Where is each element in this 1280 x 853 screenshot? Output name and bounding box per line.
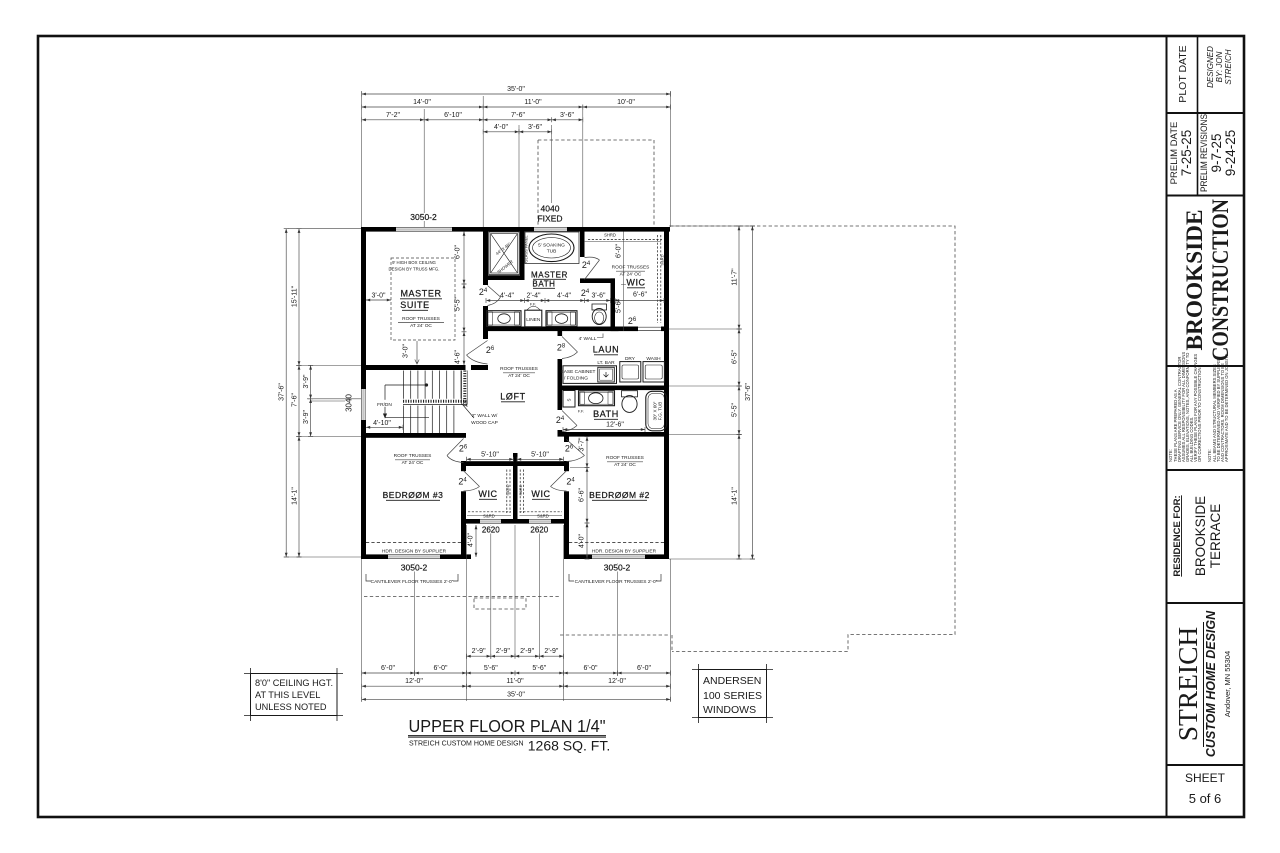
svg-text:TUB: TUB xyxy=(547,249,557,255)
svg-text:WOOD CAP: WOOD CAP xyxy=(471,420,498,426)
svg-text:AT 24' OC: AT 24' OC xyxy=(614,462,636,468)
svg-text:6'-0": 6'-0" xyxy=(615,244,622,258)
svg-text:GLASS PANEL: GLASS PANEL xyxy=(524,235,529,263)
svg-text:STREICH: STREICH xyxy=(1224,49,1233,84)
svg-text:UPPER FLOOR PLAN 1/4": UPPER FLOOR PLAN 1/4" xyxy=(409,716,606,736)
svg-text:LØFT: LØFT xyxy=(500,392,525,402)
svg-text:5'-10": 5'-10" xyxy=(531,451,549,458)
svg-text:12'-6": 12'-6" xyxy=(606,422,624,429)
svg-text:BROOKSIDE: BROOKSIDE xyxy=(1182,210,1208,351)
svg-text:2'-9": 2'-9" xyxy=(472,648,486,655)
svg-text:3'-0": 3'-0" xyxy=(403,344,410,358)
svg-text:11'-0": 11'-0" xyxy=(524,99,542,106)
svg-text:DESIGN BY TRUSS MFG.: DESIGN BY TRUSS MFG. xyxy=(389,267,440,272)
svg-text:5'-6": 5'-6" xyxy=(615,299,622,313)
svg-text:FR/DN: FR/DN xyxy=(377,402,392,408)
svg-text:UNLESS NOTED: UNLESS NOTED xyxy=(255,702,327,712)
svg-text:SHEET: SHEET xyxy=(1185,771,1226,785)
svg-text:BROOKSIDE: BROOKSIDE xyxy=(1193,496,1208,576)
svg-text:DRY: DRY xyxy=(625,356,636,362)
svg-text:4'-0": 4'-0" xyxy=(494,124,508,131)
svg-text:6'-0": 6'-0" xyxy=(455,245,462,259)
svg-text:AT 24' OC: AT 24' OC xyxy=(410,323,432,329)
svg-text:WASH: WASH xyxy=(646,356,661,362)
svg-text:CANTILEVER FLOOR TRUSSES 2'-0": CANTILEVER FLOOR TRUSSES 2'-0" xyxy=(371,579,454,585)
svg-text:RESIDENCE FOR:: RESIDENCE FOR: xyxy=(1172,495,1183,576)
svg-text:LT. BAR: LT. BAR xyxy=(597,360,615,366)
svg-text:F.G. TUB: F.G. TUB xyxy=(658,402,663,420)
svg-text:F.F.: F.F. xyxy=(578,409,584,414)
svg-text:WINDOWS: WINDOWS xyxy=(703,704,756,716)
svg-text:LAUN: LAUN xyxy=(593,345,619,355)
svg-text:9-24-25: 9-24-25 xyxy=(1223,130,1238,177)
svg-text:14'-1": 14'-1" xyxy=(291,487,298,505)
svg-text:Andover, MN 55304: Andover, MN 55304 xyxy=(1223,651,1232,717)
svg-text:STREICH: STREICH xyxy=(1172,627,1203,742)
svg-text:ROOF TRUSSES: ROOF TRUSSES xyxy=(612,265,650,271)
svg-text:12'-0": 12'-0" xyxy=(405,678,423,685)
svg-text:CUSTOM HOME DESIGN: CUSTOM HOME DESIGN xyxy=(1204,610,1218,757)
svg-text:2'-9": 2'-9" xyxy=(544,648,558,655)
svg-text:LINEN: LINEN xyxy=(526,317,541,323)
svg-text:5'-6": 5'-6" xyxy=(484,665,498,672)
svg-text:14'-0": 14'-0" xyxy=(413,99,431,106)
svg-text:7-25-25: 7-25-25 xyxy=(1179,130,1194,177)
svg-text:6'-6": 6'-6" xyxy=(579,488,586,502)
svg-text:4040: 4040 xyxy=(541,204,560,214)
svg-text:DESIGNED: DESIGNED xyxy=(1206,46,1215,88)
svg-text:ROOF TRUSSES: ROOF TRUSSES xyxy=(402,316,440,322)
svg-text:S: S xyxy=(567,398,572,401)
svg-text:2'-4": 2'-4" xyxy=(527,293,541,300)
svg-text:ANDERSEN: ANDERSEN xyxy=(703,675,761,687)
svg-text:4'-6": 4'-6" xyxy=(455,350,462,364)
svg-text:6'-0": 6'-0" xyxy=(381,665,395,672)
svg-text:11'-0": 11'-0" xyxy=(506,678,524,685)
svg-text:5'-6": 5'-6" xyxy=(532,665,546,672)
svg-text:F.F.: F.F. xyxy=(530,302,536,307)
svg-text:PLOT DATE: PLOT DATE xyxy=(1177,45,1189,102)
svg-text:OR CORRECTIONS PRIOR TO CONSTR: OR CORRECTIONS PRIOR TO CONSTRUCTION. xyxy=(1197,366,1202,462)
svg-text:4'-10": 4'-10" xyxy=(373,420,391,427)
svg-text:3'-6": 3'-6" xyxy=(560,112,574,119)
svg-text:S&RD: S&RD xyxy=(483,514,495,519)
svg-text:S&RD: S&RD xyxy=(505,484,510,495)
svg-text:WIC: WIC xyxy=(626,278,645,288)
svg-text:BEDRØØM #2: BEDRØØM #2 xyxy=(589,490,650,500)
svg-text:FIXED: FIXED xyxy=(537,214,562,224)
svg-text:CANTILEVER FLOOR TRUSSES 2'-0": CANTILEVER FLOOR TRUSSES 2'-0" xyxy=(575,579,658,585)
svg-text:2'-9": 2'-9" xyxy=(520,648,534,655)
svg-text:SUITE: SUITE xyxy=(400,300,430,310)
svg-text:5 of 6: 5 of 6 xyxy=(1189,791,1222,806)
svg-text:BATH: BATH xyxy=(532,280,555,289)
svg-text:4'-4": 4'-4" xyxy=(500,293,514,300)
svg-text:3'-6": 3'-6" xyxy=(528,124,542,131)
svg-text:3'-6": 3'-6" xyxy=(592,293,606,300)
svg-text:35'-0": 35'-0" xyxy=(507,691,525,698)
svg-text:AT THIS LEVEL: AT THIS LEVEL xyxy=(255,690,320,700)
svg-text:/ FOLDING: / FOLDING xyxy=(564,376,588,382)
svg-text:14'-1": 14'-1" xyxy=(731,487,738,505)
svg-text:7'-6": 7'-6" xyxy=(291,393,298,407)
svg-text:6'-0": 6'-0" xyxy=(434,665,448,672)
svg-text:37'-6": 37'-6" xyxy=(745,383,752,401)
svg-text:3050-2: 3050-2 xyxy=(401,563,428,573)
svg-text:S&RD: S&RD xyxy=(537,514,549,519)
svg-text:35'-0": 35'-0" xyxy=(507,86,525,93)
svg-text:7'-6": 7'-6" xyxy=(511,112,525,119)
svg-text:37'-6": 37'-6" xyxy=(279,383,286,401)
svg-text:3'-9": 3'-9" xyxy=(303,374,310,388)
svg-text:10'-0": 10'-0" xyxy=(617,99,635,106)
svg-text:BY: JON: BY: JON xyxy=(1215,51,1224,82)
svg-text:HDR. DESIGN BY SUPPLIER: HDR. DESIGN BY SUPPLIER xyxy=(592,549,657,555)
svg-text:15'-11": 15'-11" xyxy=(291,285,298,307)
svg-text:5'-5": 5'-5" xyxy=(455,297,462,311)
svg-text:TERRACE: TERRACE xyxy=(1208,504,1223,569)
svg-text:3'-0": 3'-0" xyxy=(372,293,386,300)
svg-text:APPROXIMATE AND TO BE DETERMIN: APPROXIMATE AND TO BE DETERMINED ON JOBS… xyxy=(1224,354,1229,462)
svg-text:BEDRØØM #3: BEDRØØM #3 xyxy=(383,490,444,500)
svg-text:4' WALL: 4' WALL xyxy=(579,336,597,342)
svg-text:3'-7": 3'-7" xyxy=(579,437,586,451)
svg-text:5'-5": 5'-5" xyxy=(731,403,738,417)
svg-text:6'-10": 6'-10" xyxy=(444,112,462,119)
svg-text:HDR. DESIGN BY SUPPLIER: HDR. DESIGN BY SUPPLIER xyxy=(382,549,447,555)
svg-text:BASE CABINET: BASE CABINET xyxy=(561,369,596,375)
svg-text:6'-5": 6'-5" xyxy=(731,350,738,364)
svg-text:SHRD: SHRD xyxy=(604,233,616,238)
svg-text:CONSTRUCTION: CONSTRUCTION xyxy=(1208,199,1234,361)
svg-text:S&RD: S&RD xyxy=(660,254,665,265)
svg-text:2620: 2620 xyxy=(530,526,548,535)
svg-text:11'-7": 11'-7" xyxy=(731,268,738,286)
svg-text:WIC: WIC xyxy=(531,489,550,499)
svg-text:ROOF TRUSSES: ROOF TRUSSES xyxy=(394,453,432,459)
svg-text:MASTER: MASTER xyxy=(531,271,568,280)
svg-text:7'-2": 7'-2" xyxy=(386,112,400,119)
svg-text:8'0" CEILING HGT.: 8'0" CEILING HGT. xyxy=(255,678,333,688)
svg-text:2'-9": 2'-9" xyxy=(496,648,510,655)
svg-text:AT 24' OC: AT 24' OC xyxy=(620,272,642,278)
svg-text:2620: 2620 xyxy=(482,526,500,535)
svg-text:MASTER: MASTER xyxy=(400,289,441,299)
svg-text:3'-9": 3'-9" xyxy=(303,410,310,424)
svg-text:BATH: BATH xyxy=(593,409,619,419)
svg-text:12'-0": 12'-0" xyxy=(608,678,626,685)
svg-text:4'-4": 4'-4" xyxy=(557,293,571,300)
svg-text:WIC: WIC xyxy=(478,489,497,499)
svg-text:4'-0": 4'-0" xyxy=(468,533,475,547)
svg-text:AT 24' OC: AT 24' OC xyxy=(508,373,530,379)
svg-text:3050-2: 3050-2 xyxy=(410,212,437,222)
svg-text:3050-2: 3050-2 xyxy=(604,563,631,573)
svg-text:AT 24' OC: AT 24' OC xyxy=(402,460,424,466)
svg-text:6'-0": 6'-0" xyxy=(584,665,598,672)
svg-text:9' HIGH BOX CEILING: 9' HIGH BOX CEILING xyxy=(392,260,436,265)
svg-text:3040: 3040 xyxy=(345,394,354,412)
svg-text:1268 SQ. FT.: 1268 SQ. FT. xyxy=(528,738,610,754)
svg-text:100 SERIES: 100 SERIES xyxy=(703,690,762,702)
svg-text:STREICH CUSTOM HOME DESIGN: STREICH CUSTOM HOME DESIGN xyxy=(409,741,524,748)
svg-text:9-7-25: 9-7-25 xyxy=(1209,133,1224,172)
svg-text:5' SOAKING: 5' SOAKING xyxy=(538,243,565,249)
svg-text:6'-0": 6'-0" xyxy=(637,665,651,672)
svg-text:5'-10": 5'-10" xyxy=(481,451,499,458)
svg-text:4'-0": 4'-0" xyxy=(579,534,586,548)
svg-text:ROOF TRUSSES: ROOF TRUSSES xyxy=(500,366,538,372)
svg-text:2" WALL W/: 2" WALL W/ xyxy=(472,413,498,419)
svg-text:S&RD: S&RD xyxy=(518,484,523,495)
svg-text:6'-6": 6'-6" xyxy=(633,292,647,299)
svg-text:ROOF TRUSSES: ROOF TRUSSES xyxy=(606,455,644,461)
